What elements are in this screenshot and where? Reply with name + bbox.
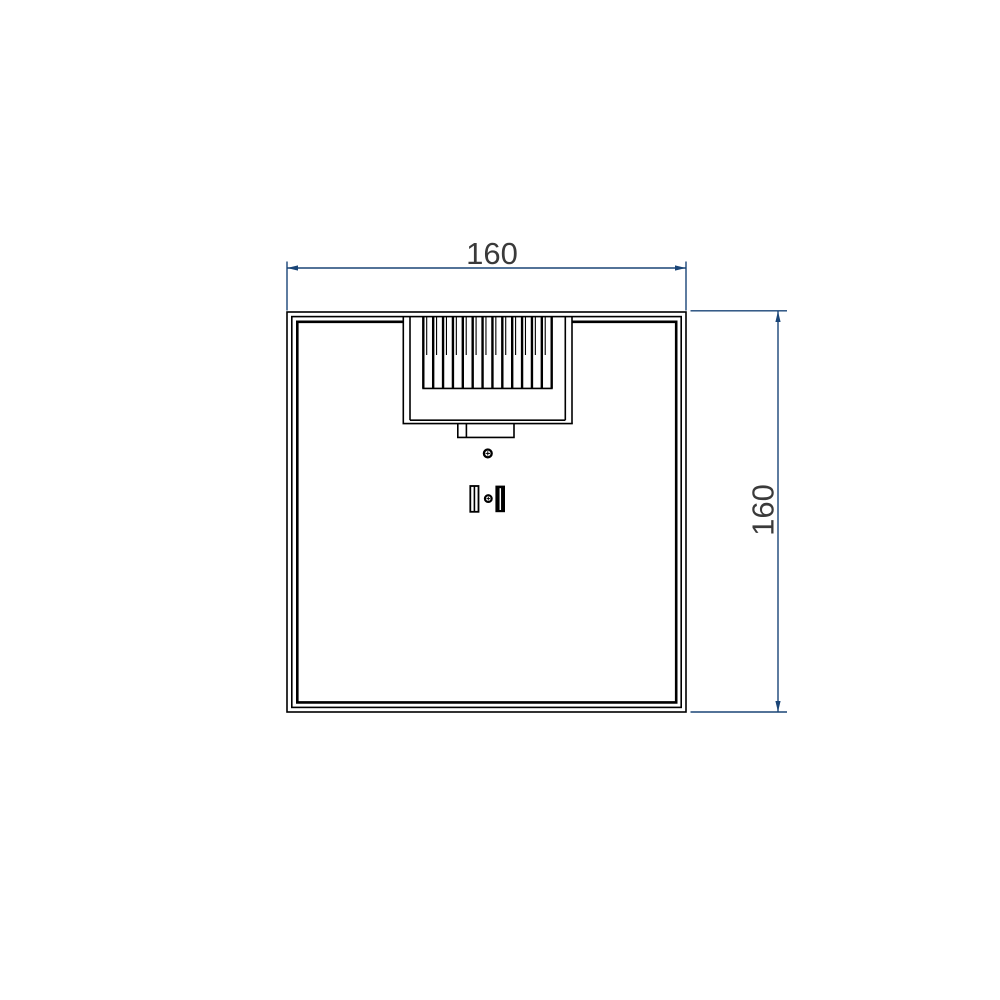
width-arrow-left-icon bbox=[287, 265, 298, 270]
technical-drawing-page: 160 160 bbox=[0, 0, 1000, 1000]
fin-array bbox=[423, 317, 551, 388]
width-dimension-label: 160 bbox=[466, 236, 518, 271]
slot-left bbox=[470, 486, 478, 512]
enclosure-inner-frame bbox=[297, 322, 676, 703]
width-arrow-right-icon bbox=[675, 265, 686, 270]
enclosure-outline bbox=[287, 312, 686, 712]
enclosure-outer-frame bbox=[287, 312, 686, 712]
enclosure-mid-frame bbox=[292, 317, 681, 708]
height-arrow-bottom-icon bbox=[775, 701, 780, 712]
connector-tab bbox=[458, 424, 514, 437]
heatsink-housing bbox=[403, 317, 573, 424]
height-arrow-top-icon bbox=[775, 311, 780, 322]
dimensions bbox=[287, 262, 787, 713]
center-mark bbox=[485, 495, 492, 502]
height-dimension-label: 160 bbox=[746, 484, 781, 536]
screw-hole bbox=[484, 450, 492, 458]
slot-right bbox=[495, 486, 505, 513]
drawing-canvas: 160 160 bbox=[0, 0, 1000, 1000]
